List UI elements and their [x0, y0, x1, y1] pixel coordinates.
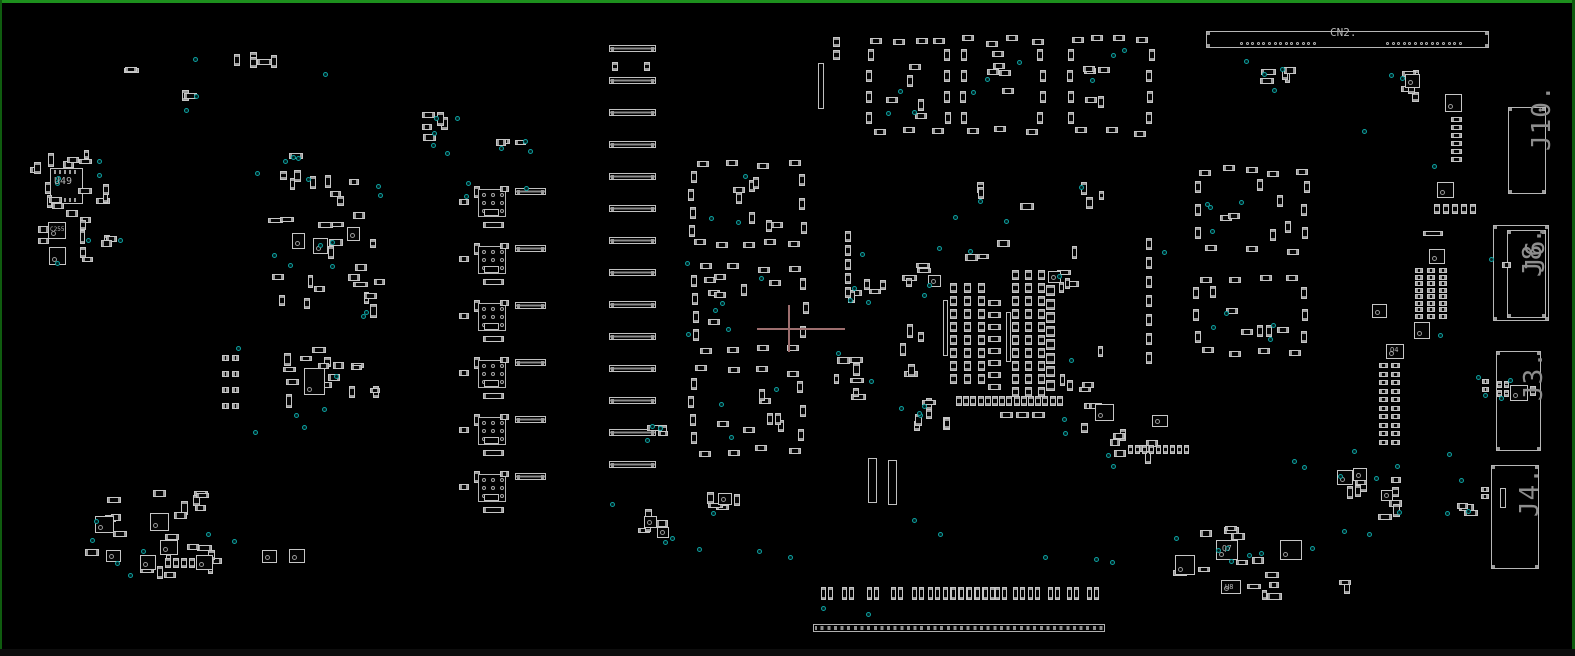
capacitor-pair [842, 587, 847, 600]
component-footprint [918, 99, 924, 111]
decoupling-part [1379, 406, 1388, 411]
capacitor-pair [1020, 587, 1025, 600]
component-footprint [789, 266, 801, 272]
corner-tick [1494, 226, 1497, 229]
component-footprint [1296, 169, 1308, 175]
ic-footprint [289, 549, 305, 563]
component-footprint [734, 494, 740, 507]
decoupling-part [1184, 445, 1189, 454]
decoupling-part [1439, 301, 1447, 306]
relay-bar [515, 302, 546, 309]
component-footprint [1032, 39, 1044, 45]
cn2-pin-dot [1257, 42, 1260, 45]
component-footprint [107, 497, 121, 503]
corner-tick [1485, 44, 1488, 47]
component-footprint [917, 268, 931, 273]
component-footprint [1114, 450, 1125, 456]
component-footprint [612, 62, 618, 71]
component-footprint [52, 203, 64, 209]
decoupling-part [1025, 322, 1032, 332]
component-footprint [1200, 530, 1212, 537]
decoupling-part [950, 348, 957, 358]
component-footprint [656, 520, 668, 526]
test-point [194, 94, 199, 99]
relay-side-part [500, 300, 509, 306]
decoupling-part [1439, 268, 1447, 273]
decoupling-part [978, 322, 985, 332]
decoupling-part [1379, 397, 1388, 402]
test-point [860, 252, 865, 257]
component-footprint [422, 112, 436, 118]
component-footprint [85, 549, 99, 556]
decoupling-part [1439, 288, 1447, 293]
component-footprint [312, 347, 326, 353]
decoupling-part [1427, 307, 1435, 312]
test-point [743, 174, 748, 179]
test-point [821, 606, 826, 611]
test-point [788, 555, 793, 560]
component-footprint [328, 246, 334, 258]
decoupling-part [988, 348, 1001, 354]
component-footprint [803, 302, 809, 314]
component-footprint [700, 348, 712, 354]
decoupling-part [1427, 281, 1435, 286]
corner-tick [1497, 447, 1500, 450]
capacitor-pair [1013, 587, 1018, 600]
corner-tick [1207, 44, 1210, 47]
decoupling-part [964, 335, 971, 345]
decoupling-part [1439, 281, 1447, 286]
component-footprint [967, 128, 979, 134]
border-left [0, 0, 2, 650]
decoupling-part [189, 558, 195, 568]
decoupling-part [222, 403, 229, 409]
relay-pad [482, 364, 486, 368]
test-point [757, 549, 762, 554]
decoupling-part [1014, 396, 1020, 406]
decoupling-part [1146, 314, 1152, 326]
test-point [272, 253, 277, 258]
component-footprint [1106, 127, 1118, 133]
component-footprint [125, 67, 137, 72]
component-footprint [1210, 286, 1216, 298]
relay-pad [500, 421, 504, 425]
capacitor-pair [919, 587, 924, 600]
test-point [283, 159, 288, 164]
test-point [232, 539, 237, 544]
component-footprint [1072, 37, 1084, 43]
q4-label: Q4 [1390, 346, 1398, 354]
component-footprint [1258, 348, 1270, 354]
component-footprint [866, 70, 872, 82]
decoupling-part [964, 309, 971, 319]
component-footprint [697, 161, 709, 167]
test-point [1043, 555, 1048, 560]
component-footprint [1236, 560, 1248, 565]
decoupling-part [1046, 380, 1055, 391]
component-footprint [986, 41, 998, 47]
component-footprint [1246, 246, 1258, 252]
component-footprint [769, 280, 781, 286]
cn2-pin-dot [1285, 42, 1288, 45]
decoupling-part [1415, 288, 1423, 293]
decoupling-part [165, 558, 171, 568]
ic-footprint [1095, 404, 1114, 421]
relay-pad [491, 315, 495, 319]
component-footprint [164, 572, 176, 577]
capacitor-pair [821, 587, 826, 600]
decoupling-part [1012, 335, 1019, 345]
decoupling-part [1379, 389, 1388, 394]
test-point [1162, 250, 1167, 255]
component-footprint [1287, 249, 1299, 255]
decoupling-part [964, 322, 971, 332]
decoupling-part [1415, 294, 1423, 299]
decoupling-part [1415, 275, 1423, 280]
component-footprint [80, 220, 86, 230]
test-point [1090, 78, 1095, 83]
component-footprint [888, 460, 897, 505]
component-footprint [1020, 203, 1035, 210]
decoupling-part [181, 558, 187, 568]
decoupling-part [978, 296, 985, 306]
component-footprint [1482, 379, 1489, 384]
decoupling-part [1042, 396, 1048, 406]
relay-pad [491, 429, 495, 433]
decoupling-part [1025, 296, 1032, 306]
relay-pad [491, 258, 495, 262]
component-footprint [1228, 213, 1240, 219]
component-footprint [286, 394, 292, 408]
corner-tick [1492, 565, 1495, 568]
decoupling-part [232, 403, 239, 409]
component-footprint [992, 51, 1004, 57]
decoupling-part [988, 324, 1001, 330]
ic-footprint [644, 516, 657, 528]
capacitor-pair [891, 587, 896, 600]
relay-pad [500, 258, 504, 262]
component-footprint [174, 512, 187, 519]
decoupling-part [964, 348, 971, 358]
component-footprint [1481, 494, 1489, 499]
component-footprint [1378, 514, 1393, 519]
component-footprint [726, 160, 738, 166]
component-footprint [907, 324, 913, 337]
relay-side-part [500, 414, 509, 420]
socket-bar [609, 397, 656, 404]
component-footprint [1195, 227, 1201, 239]
component-footprint [257, 59, 272, 66]
relay-pad [500, 323, 504, 327]
decoupling-part [1000, 412, 1013, 418]
decoupling-part [1177, 445, 1182, 454]
component-footprint [759, 389, 765, 401]
component-footprint [918, 332, 924, 342]
component-footprint [153, 490, 166, 497]
test-point [1004, 219, 1009, 224]
component-footprint [944, 91, 950, 103]
relay-bottom-part [483, 336, 504, 342]
cn2-pin-dot [1403, 42, 1406, 45]
decoupling-part [1427, 288, 1435, 293]
decoupling-part [1025, 283, 1032, 293]
component-footprint [196, 493, 208, 498]
decoupling-part [1427, 301, 1435, 306]
component-footprint [1146, 112, 1152, 124]
decoupling-part [1379, 414, 1388, 419]
decoupling-part [222, 387, 229, 393]
decoupling-part [1163, 445, 1168, 454]
component-footprint [333, 362, 344, 369]
component-footprint [799, 198, 805, 210]
decoupling-part [1038, 374, 1045, 384]
test-point [866, 612, 871, 617]
decoupling-part [1012, 361, 1019, 371]
test-point [726, 327, 731, 332]
ic-footprint [196, 555, 213, 570]
relay-bottom-part [483, 393, 504, 399]
relay-pad [491, 372, 495, 376]
corner-tick [1542, 314, 1545, 317]
component-footprint [691, 171, 697, 183]
relay-pad [482, 478, 486, 482]
u8-label: U8 [1225, 583, 1233, 591]
component-footprint [886, 97, 898, 103]
test-point [1122, 48, 1127, 53]
component-footprint [1392, 487, 1398, 498]
test-point [1292, 459, 1297, 464]
decoupling-part [1046, 353, 1055, 364]
test-point [938, 532, 943, 537]
component-footprint [932, 128, 944, 134]
component-footprint [1504, 390, 1509, 397]
test-point [253, 430, 258, 435]
relay-pad [491, 364, 495, 368]
decoupling-part [1142, 445, 1147, 454]
test-point [1395, 464, 1400, 469]
component-footprint [944, 70, 950, 82]
component-footprint [45, 182, 51, 194]
decoupling-part [978, 348, 985, 358]
socket-bar [609, 301, 656, 308]
decoupling-part [1046, 339, 1055, 350]
test-point [141, 549, 146, 554]
component-footprint [101, 240, 112, 247]
component-footprint [1068, 91, 1074, 103]
component-footprint [908, 364, 915, 377]
component-footprint [1265, 572, 1279, 578]
component-footprint [1193, 287, 1199, 299]
component-footprint [1285, 221, 1291, 233]
test-point [869, 379, 874, 384]
decoupling-part [1391, 363, 1400, 368]
test-point [1229, 559, 1234, 564]
component-footprint [1037, 49, 1043, 61]
test-point [318, 243, 323, 248]
component-footprint [1202, 347, 1214, 353]
capacitor-pair [1028, 587, 1033, 600]
component-footprint [978, 187, 984, 199]
test-point [523, 139, 528, 144]
relay-pad [482, 486, 486, 490]
decoupling-part [1016, 412, 1029, 418]
component-footprint [103, 184, 109, 195]
component-footprint [272, 274, 284, 279]
relay-side-part [459, 199, 469, 205]
component-footprint [728, 450, 740, 456]
component-footprint [716, 242, 728, 248]
relay-pad [500, 494, 504, 498]
component-footprint [82, 257, 93, 262]
relay-pad [482, 258, 486, 262]
decoupling-part [978, 335, 985, 345]
relay-pad [482, 201, 486, 205]
decoupling-part [232, 355, 239, 361]
test-point [1111, 53, 1116, 58]
cn2-pin-dot [1459, 42, 1462, 45]
component-footprint [699, 451, 711, 457]
component-footprint [1229, 351, 1241, 357]
component-footprint [370, 388, 380, 393]
component-footprint [374, 279, 385, 285]
decoupling-part [950, 335, 957, 345]
test-point [1208, 205, 1213, 210]
test-point [499, 146, 504, 151]
decoupling-part [1391, 423, 1400, 428]
decoupling-part [1146, 295, 1152, 307]
relay-pad [500, 478, 504, 482]
component-footprint [994, 126, 1006, 132]
test-point [1057, 274, 1062, 279]
capacitor-pair [898, 587, 903, 600]
component-footprint [300, 356, 313, 362]
relay-pad [500, 307, 504, 311]
test-point [866, 300, 871, 305]
component-footprint [1065, 278, 1070, 290]
capacitor-pair [959, 587, 964, 600]
relay-pad [491, 250, 495, 254]
component-footprint [658, 431, 668, 436]
edge-connector [813, 624, 1105, 632]
relay-side-part [500, 471, 509, 477]
capacitor-pair [975, 587, 980, 600]
component-footprint [1200, 277, 1212, 283]
test-point [376, 184, 381, 189]
decoupling-part [1146, 333, 1152, 345]
component-footprint [868, 49, 874, 61]
component-footprint [1284, 67, 1296, 74]
component-footprint [1149, 49, 1155, 61]
component-footprint [1289, 350, 1301, 356]
component-footprint [1075, 127, 1087, 133]
relay-pad [500, 486, 504, 490]
socket-bar [609, 365, 656, 372]
component-footprint [1423, 231, 1443, 236]
component-footprint [187, 544, 200, 551]
decoupling-part [1439, 275, 1447, 280]
decoupling-part [1451, 117, 1462, 122]
component-footprint [727, 347, 739, 353]
decoupling-part [1012, 296, 1019, 306]
ic-footprint [1414, 322, 1430, 339]
component-footprint [290, 178, 295, 190]
relay-bottom-part [483, 279, 504, 285]
component-footprint [349, 179, 360, 185]
test-point [650, 424, 655, 429]
test-point [1259, 551, 1264, 556]
component-footprint [283, 367, 296, 372]
test-point [97, 159, 102, 164]
component-footprint [977, 254, 989, 259]
component-footprint [1147, 91, 1153, 103]
component-footprint [758, 267, 770, 273]
component-footprint [113, 531, 126, 537]
decoupling-part [1057, 396, 1063, 406]
cn2-pin-dot [1420, 42, 1423, 45]
ic-footprint [1280, 540, 1302, 560]
capacitor-pair [967, 587, 972, 600]
capacitor-pair [983, 587, 988, 600]
decoupling-part [1391, 397, 1400, 402]
cn2-pin-dot [1448, 42, 1451, 45]
decoupling-part [1451, 125, 1462, 130]
component-footprint [234, 54, 240, 66]
pcb-assembly-canvas[interactable]: CN2. U49 C255 Q4 Q7 U8 J10.J8.J6.J3.J4. [0, 0, 1575, 656]
component-footprint [280, 171, 287, 181]
relay-bottom-part [483, 507, 504, 513]
cn2-pin-dot [1386, 42, 1389, 45]
component-footprint [1068, 112, 1074, 124]
component-footprint [999, 70, 1011, 76]
test-point [431, 143, 436, 148]
decoupling-part [950, 296, 957, 306]
decoupling-part [1038, 309, 1045, 319]
capacitor-pair [995, 587, 1000, 600]
test-point [610, 502, 615, 507]
test-point [1106, 453, 1111, 458]
component-footprint [280, 217, 294, 222]
decoupling-part [1012, 270, 1019, 280]
socket-bar [609, 269, 656, 276]
decoupling-part [1149, 445, 1154, 454]
test-point [1432, 164, 1437, 169]
decoupling-part [1452, 204, 1458, 214]
component-footprint [693, 311, 699, 323]
component-footprint [1502, 262, 1511, 268]
component-footprint [1195, 181, 1201, 193]
decoupling-part [1038, 283, 1045, 293]
component-footprint [364, 293, 377, 298]
decoupling-part [1135, 445, 1140, 454]
capacitor-pair [867, 587, 872, 600]
component-footprint [850, 378, 864, 383]
relay-inner-rect [484, 380, 499, 387]
component-footprint [965, 254, 978, 261]
relay-pad [482, 421, 486, 425]
relay-inner-rect [484, 494, 499, 501]
component-footprint [284, 353, 291, 366]
decoupling-part [1038, 270, 1045, 280]
component-footprint [1099, 191, 1104, 201]
component-footprint [1195, 204, 1201, 216]
decoupling-part [1439, 307, 1447, 312]
component-footprint [800, 278, 806, 290]
component-footprint [1231, 533, 1245, 540]
decoupling-part [1012, 374, 1019, 384]
decoupling-part [988, 336, 1001, 342]
relay-inner-rect [484, 323, 499, 330]
decoupling-part [950, 283, 957, 293]
